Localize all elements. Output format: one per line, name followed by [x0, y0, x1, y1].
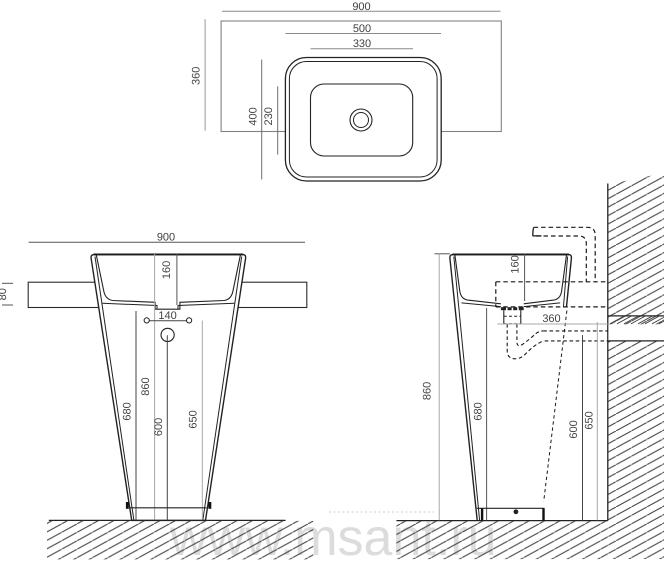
svg-text:900: 900 — [157, 231, 175, 243]
svg-text:360: 360 — [190, 67, 202, 85]
svg-text:600: 600 — [568, 420, 580, 438]
svg-text:160: 160 — [510, 255, 522, 273]
svg-text:230: 230 — [263, 107, 275, 125]
svg-text:400: 400 — [247, 107, 259, 125]
svg-text:160: 160 — [161, 261, 173, 279]
svg-text:860: 860 — [422, 382, 434, 400]
svg-text:500: 500 — [353, 23, 371, 35]
svg-text:650: 650 — [583, 411, 595, 429]
svg-text:680: 680 — [122, 402, 134, 420]
svg-text:650: 650 — [188, 410, 200, 428]
svg-text:330: 330 — [353, 38, 371, 50]
svg-text:680: 680 — [472, 402, 484, 420]
svg-text:80: 80 — [0, 288, 9, 300]
svg-text:900: 900 — [352, 1, 370, 13]
svg-text:860: 860 — [140, 377, 152, 395]
svg-text:360: 360 — [542, 313, 560, 325]
svg-text:140: 140 — [158, 310, 176, 322]
svg-text:600: 600 — [153, 418, 165, 436]
